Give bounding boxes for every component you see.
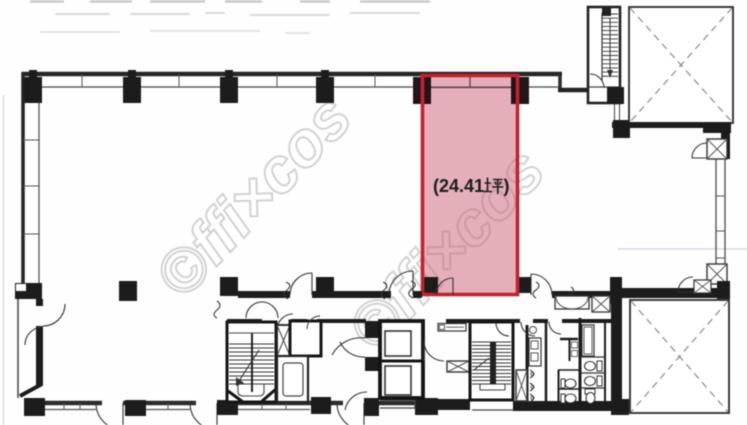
svg-text:(24.41: (24.41: [433, 176, 484, 196]
svg-text:): ): [504, 176, 510, 196]
